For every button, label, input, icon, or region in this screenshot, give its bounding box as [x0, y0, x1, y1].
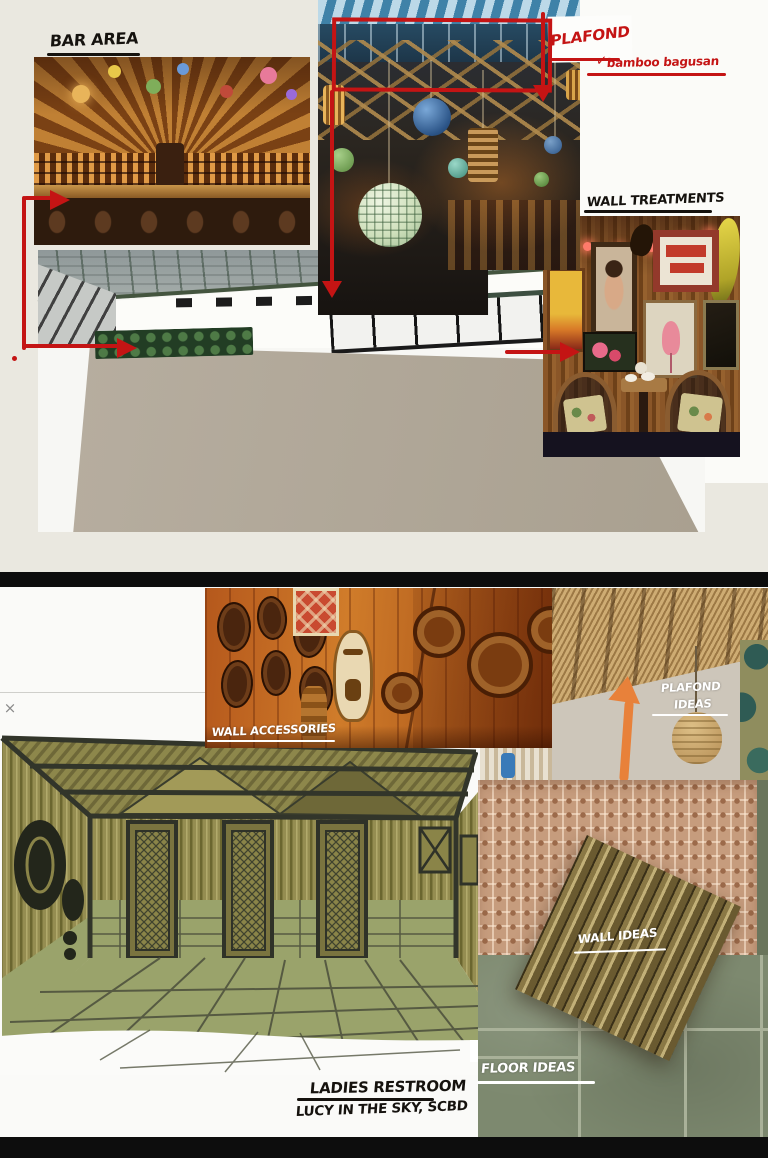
table-teapot: [635, 362, 647, 374]
plafond-ideas-label-line1: PLAFOND: [660, 679, 721, 695]
lantern-string: [554, 60, 556, 140]
bar-lantern: [72, 85, 90, 103]
red-annotation-rectangle: [332, 17, 552, 92]
carved-bar-front: [34, 198, 310, 245]
tile-grout-v: [760, 955, 763, 1137]
wall-treatments-underline: [584, 210, 712, 213]
white-tiki-mask: [333, 630, 373, 722]
close-icon[interactable]: ×: [2, 700, 18, 716]
red-measure-line-vertical: [22, 196, 26, 350]
red-arrowhead-down-plafond: [533, 85, 553, 102]
floor-ideas-underline: [477, 1081, 595, 1084]
bar-lantern: [177, 63, 189, 75]
table-leg: [639, 392, 648, 436]
top-divider-bar: [0, 572, 768, 587]
round-shield: [467, 632, 533, 698]
thatch-ceiling-photo: [552, 588, 768, 780]
tiki-mask: [255, 595, 289, 641]
bar-lantern: [108, 65, 121, 78]
red-sign-art: [670, 263, 704, 273]
bar-lantern: [220, 85, 233, 98]
red-arrowhead-right-bar: [50, 190, 70, 210]
tile-grout-h-offset: [478, 1056, 578, 1059]
center-totem: [156, 143, 184, 187]
bar-lantern: [286, 89, 297, 100]
tiki-mask-brow: [343, 649, 363, 655]
plafond-ideas-underline: [652, 714, 728, 716]
floral-pillow: [677, 393, 723, 436]
red-sign-frame: [653, 230, 719, 292]
photo-dark-floor: [543, 432, 740, 457]
floral-pillow: [563, 394, 608, 435]
wall-accessories-underline: [207, 740, 335, 742]
table-cup: [625, 374, 637, 382]
teal-circle-wallpaper: [740, 640, 768, 780]
red-arrowhead-right-walltreatments: [560, 342, 580, 362]
flamingo-leg: [670, 353, 672, 373]
room-title-label: LADIES RESTROOM: [309, 1077, 467, 1098]
blue-glass-float-small: [544, 136, 562, 154]
restroom-sketch: [0, 730, 478, 1075]
flamingo-art: [662, 321, 680, 355]
red-line-vertical-left: [330, 90, 334, 282]
tiki-mask-mouth: [345, 679, 361, 701]
blue-glass-float: [413, 98, 451, 136]
flamingo-frame: [643, 300, 697, 378]
red-line-vertical-plafond: [541, 12, 545, 86]
webbing-right-strip: [757, 780, 768, 955]
bottom-letterbox-bar: [0, 1137, 768, 1158]
orange-arrowhead-up: [608, 674, 643, 704]
teal-glass-float: [448, 158, 468, 178]
rattan-pendant-lamp: [672, 712, 722, 764]
paper-sliver: [470, 1040, 478, 1062]
bamboo-note-underline: [587, 73, 726, 76]
shelf-photo-fragment: [480, 748, 552, 780]
bar-lantern: [146, 79, 161, 94]
check-icon: ✓: [595, 54, 607, 69]
orange-arrow-shaft: [619, 700, 634, 780]
tiki-mask: [220, 659, 254, 709]
red-arrow-line-walltreatments: [505, 350, 563, 354]
round-shield: [381, 672, 423, 714]
room-subtitle-label: LUCY IN THE SKY, SCBD: [295, 1098, 468, 1120]
tiki-mask: [217, 602, 251, 652]
red-arrowhead-down-model: [322, 281, 342, 298]
mood-board: BAR AREA PLAFOND ✓ bamboo bagusan WALL T…: [0, 0, 768, 1158]
red-tick-dot: [12, 356, 17, 361]
floor-ideas-label: FLOOR IDEAS: [480, 1060, 575, 1077]
portrait-frame: [591, 242, 637, 336]
tiki-mask: [261, 650, 291, 696]
slat-lantern: [468, 128, 498, 182]
bar-area-label: BAR AREA: [49, 28, 139, 50]
canvas-edge-line: [0, 692, 206, 693]
bar-back-glow: [448, 200, 580, 270]
dark-art-frame: [703, 300, 739, 370]
amber-lantern-small: [566, 70, 580, 100]
round-shield: [413, 606, 465, 658]
hibiscus-frame: [583, 332, 637, 372]
bar-lantern: [260, 67, 277, 84]
plafond-ideas-label-line2: IDEAS: [673, 696, 711, 711]
bali-poster: [547, 268, 585, 352]
netted-celadon-globe: [358, 183, 422, 247]
blue-bottle: [501, 753, 515, 778]
bar-counter-top: [34, 185, 310, 198]
bar-interior-photo: [34, 57, 310, 245]
red-arrowhead-right-hedge: [117, 338, 137, 358]
red-lantern: [293, 588, 339, 636]
red-measure-line-left-bottom: [24, 344, 120, 348]
bar-area-underline: [47, 53, 140, 56]
bamboo-note-label: bamboo bagusan: [606, 54, 719, 70]
green-glass-float-small: [534, 172, 549, 187]
red-sign-art: [666, 245, 706, 257]
